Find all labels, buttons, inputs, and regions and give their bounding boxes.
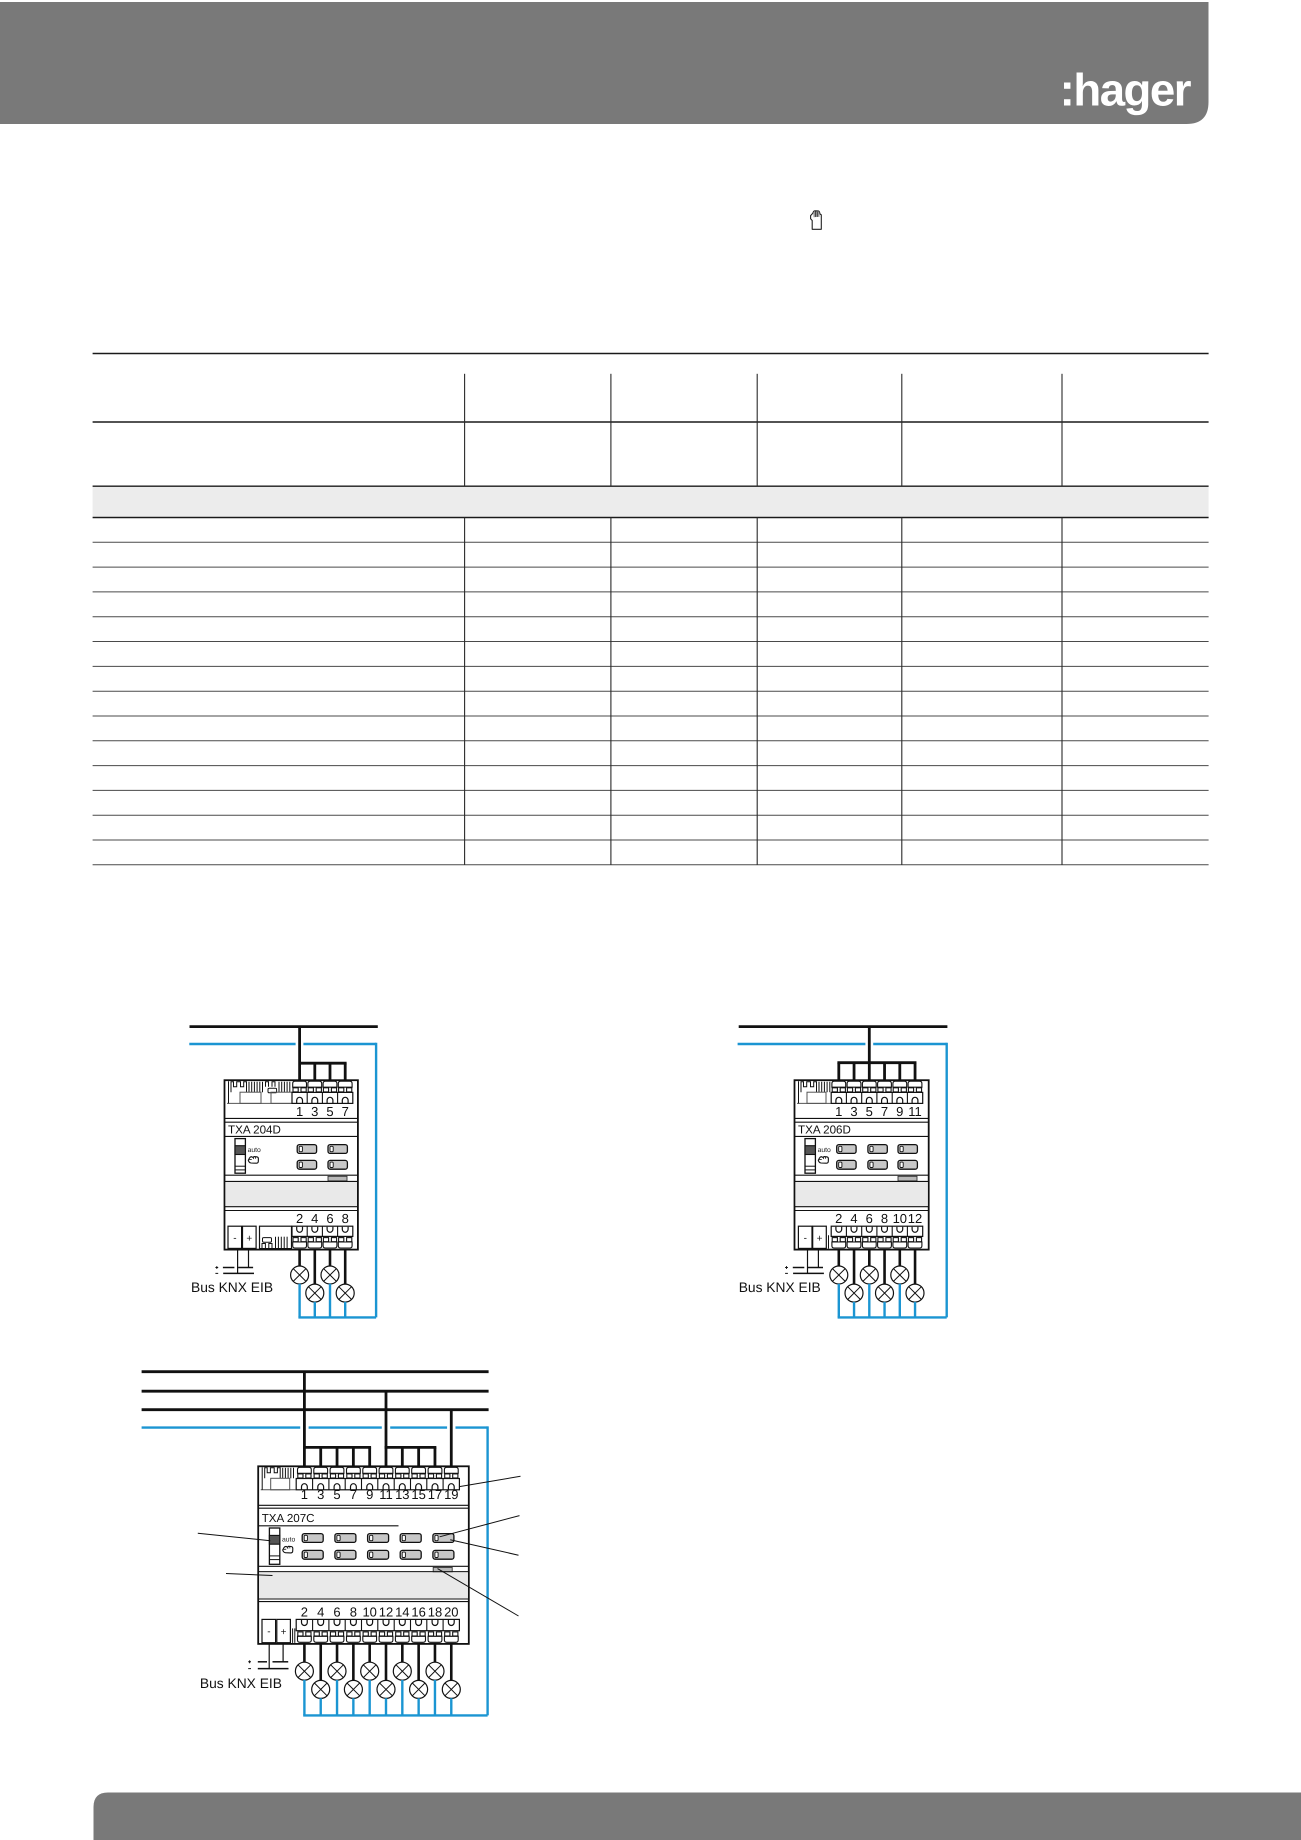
svg-text:16: 16 — [411, 1605, 425, 1620]
svg-text:17: 17 — [428, 1487, 442, 1502]
svg-text:auto: auto — [818, 1147, 831, 1154]
svg-text:6: 6 — [333, 1605, 340, 1620]
svg-text:12: 12 — [379, 1605, 393, 1620]
svg-text:5: 5 — [866, 1104, 873, 1119]
svg-text:7: 7 — [350, 1487, 357, 1502]
svg-text:auto: auto — [248, 1147, 261, 1154]
svg-text::hager: :hager — [1060, 65, 1192, 116]
svg-text:4: 4 — [311, 1211, 318, 1226]
svg-text:Bus KNX EIB: Bus KNX EIB — [739, 1280, 821, 1295]
svg-text:13: 13 — [395, 1487, 409, 1502]
svg-text:14: 14 — [395, 1605, 409, 1620]
svg-text:Bus KNX EIB: Bus KNX EIB — [191, 1280, 273, 1295]
svg-text:20: 20 — [444, 1605, 458, 1620]
svg-text:auto: auto — [282, 1537, 295, 1544]
svg-text:11: 11 — [908, 1104, 922, 1119]
svg-text:3: 3 — [317, 1487, 324, 1502]
svg-text:7: 7 — [342, 1104, 349, 1119]
svg-text:18: 18 — [428, 1605, 442, 1620]
svg-text:TXA 207C: TXA 207C — [262, 1512, 315, 1525]
svg-text:3: 3 — [311, 1104, 318, 1119]
svg-text:TXA 204D: TXA 204D — [228, 1124, 281, 1137]
svg-text:+: + — [817, 1234, 823, 1245]
svg-text:8: 8 — [350, 1605, 357, 1620]
svg-text:5: 5 — [326, 1104, 333, 1119]
svg-text:10: 10 — [893, 1211, 907, 1226]
svg-text:9: 9 — [896, 1104, 903, 1119]
svg-text:4: 4 — [850, 1211, 857, 1226]
svg-text:-: - — [233, 1233, 236, 1244]
svg-text:2: 2 — [296, 1211, 303, 1226]
svg-text:15: 15 — [411, 1487, 425, 1502]
svg-text:8: 8 — [342, 1211, 349, 1226]
svg-text:-: - — [267, 1626, 270, 1637]
svg-text:1: 1 — [296, 1104, 303, 1119]
svg-text:8: 8 — [881, 1211, 888, 1226]
svg-text:1: 1 — [301, 1487, 308, 1502]
svg-text:2: 2 — [835, 1211, 842, 1226]
svg-text:+: + — [281, 1627, 287, 1638]
svg-text:1: 1 — [835, 1104, 842, 1119]
svg-text:TXA 206D: TXA 206D — [798, 1124, 851, 1137]
svg-text:+: + — [246, 1234, 252, 1245]
svg-text:-: - — [804, 1233, 807, 1244]
svg-text:9: 9 — [366, 1487, 373, 1502]
svg-text:2: 2 — [301, 1605, 308, 1620]
svg-text:3: 3 — [850, 1104, 857, 1119]
svg-text:4: 4 — [317, 1605, 324, 1620]
svg-text:19: 19 — [444, 1487, 458, 1502]
svg-text:10: 10 — [362, 1605, 376, 1620]
svg-text:Bus KNX EIB: Bus KNX EIB — [200, 1676, 282, 1691]
svg-text:11: 11 — [379, 1487, 393, 1502]
svg-text:6: 6 — [326, 1211, 333, 1226]
svg-text:7: 7 — [881, 1104, 888, 1119]
svg-text:12: 12 — [908, 1211, 922, 1226]
svg-text:6: 6 — [866, 1211, 873, 1226]
svg-text:5: 5 — [333, 1487, 340, 1502]
